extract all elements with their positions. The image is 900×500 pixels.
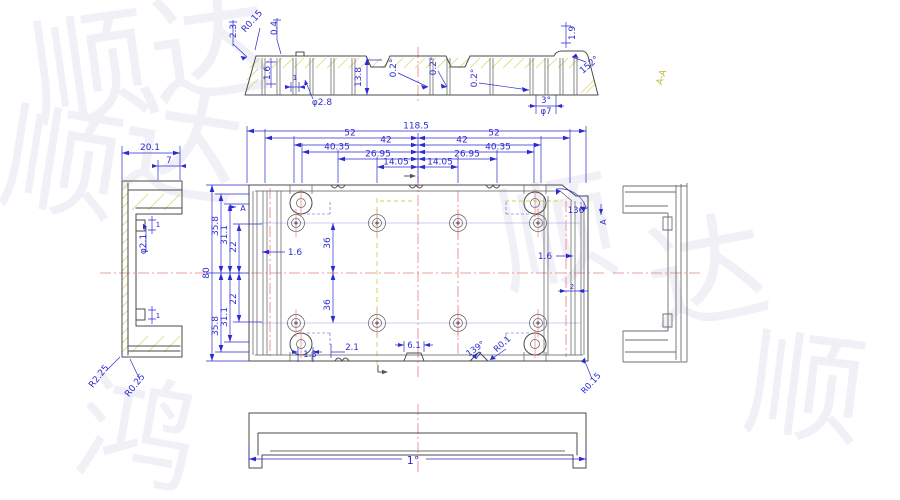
dim-dia7: φ7 [540, 107, 551, 117]
dim-0-2deg-2: 0.2° [429, 57, 439, 76]
section-label-aa: A-A [655, 68, 669, 86]
watermark-char: 顺 [485, 156, 629, 315]
dim-40-35-right: 40.35 [485, 143, 511, 153]
dim-0-2deg-1: 0.2° [389, 59, 399, 78]
dim-1-6-right: 1.6 [538, 252, 553, 262]
section-view-aa: 2.3 R0.15 0.4 1.6 13.8 1 φ2.8 0.2° 0.2° … [229, 9, 669, 117]
section-dim-arrows [241, 54, 579, 109]
dim-118-5: 118.5 [403, 122, 429, 132]
dim-7: 7 [166, 156, 171, 166]
dim-40-35-left: 40.35 [324, 143, 350, 153]
dim-42-left: 42 [380, 136, 391, 146]
dim-1-bottom: 1 [156, 312, 160, 320]
dim-36-top: 36 [323, 237, 333, 249]
dim-2-3: 2.3 [229, 24, 239, 38]
dim-2-1: 2.1 [345, 343, 359, 353]
dim-0-2deg-3: 0.2° [470, 69, 480, 88]
drawing-canvas: 顺 达 顺 达 顺 达 鸿 顺 2.3 R0.15 0.4 1.6 13.8 1… [0, 0, 900, 500]
dim-3deg: 3° [541, 96, 551, 106]
dim-80: 80 [202, 267, 212, 279]
dim-2: 2 [570, 283, 574, 291]
section-mark-a-left: A [240, 204, 246, 213]
dim-1-3: 1.3 [303, 350, 317, 360]
dim-26-95-right: 26.95 [454, 150, 480, 160]
dim-14-05-left: 14.05 [383, 158, 409, 168]
watermark-char: 顺 [0, 87, 131, 243]
dim-dia2-1: φ2.1 [139, 234, 149, 254]
cad-drawing: 顺 达 顺 达 顺 达 鸿 顺 2.3 R0.15 0.4 1.6 13.8 1… [0, 0, 900, 500]
dim-22-bottom: 22 [229, 293, 239, 304]
dim-52-left: 52 [344, 129, 355, 139]
dim-r0-15-plan: R0.15 [579, 371, 603, 396]
bottom-view: 1° [249, 413, 586, 468]
dim-1deg: 1° [407, 454, 420, 467]
dim-1-section: 1 [293, 74, 297, 82]
dim-20-1: 20.1 [140, 143, 160, 153]
watermark-char: 顺 [737, 314, 873, 467]
dim-136deg: 136° [568, 206, 588, 216]
dim-14-05-right: 14.05 [427, 158, 453, 168]
dim-1-6-left: 1.6 [288, 248, 303, 258]
dim-1-top: 1 [156, 221, 160, 229]
dim-1-9: 1.9 [568, 26, 578, 41]
dim-42-right: 42 [456, 136, 467, 146]
dim-36-bottom: 36 [323, 299, 333, 311]
dim-1-6-section: 1.6 [263, 66, 273, 81]
dim-35-8-bottom: 35.8 [211, 316, 221, 336]
dim-31-1-bottom: 31.1 [220, 307, 230, 327]
watermark-char: 达 [111, 72, 251, 228]
section-dim-lines [229, 18, 586, 114]
dim-6-1: 6.1 [407, 341, 421, 351]
plan-view: 118.5 52 52 42 42 40.35 40.35 26.95 26.9… [202, 122, 608, 397]
section-mark-a-right: A [599, 219, 608, 225]
dim-22-top: 22 [229, 241, 239, 252]
dim-dia2-8: φ2.8 [312, 98, 333, 108]
dim-0-4: 0.4 [270, 21, 280, 36]
dim-152deg: 152° [578, 55, 601, 77]
dim-52-right: 52 [488, 129, 499, 139]
dim-13-8: 13.8 [354, 67, 364, 87]
